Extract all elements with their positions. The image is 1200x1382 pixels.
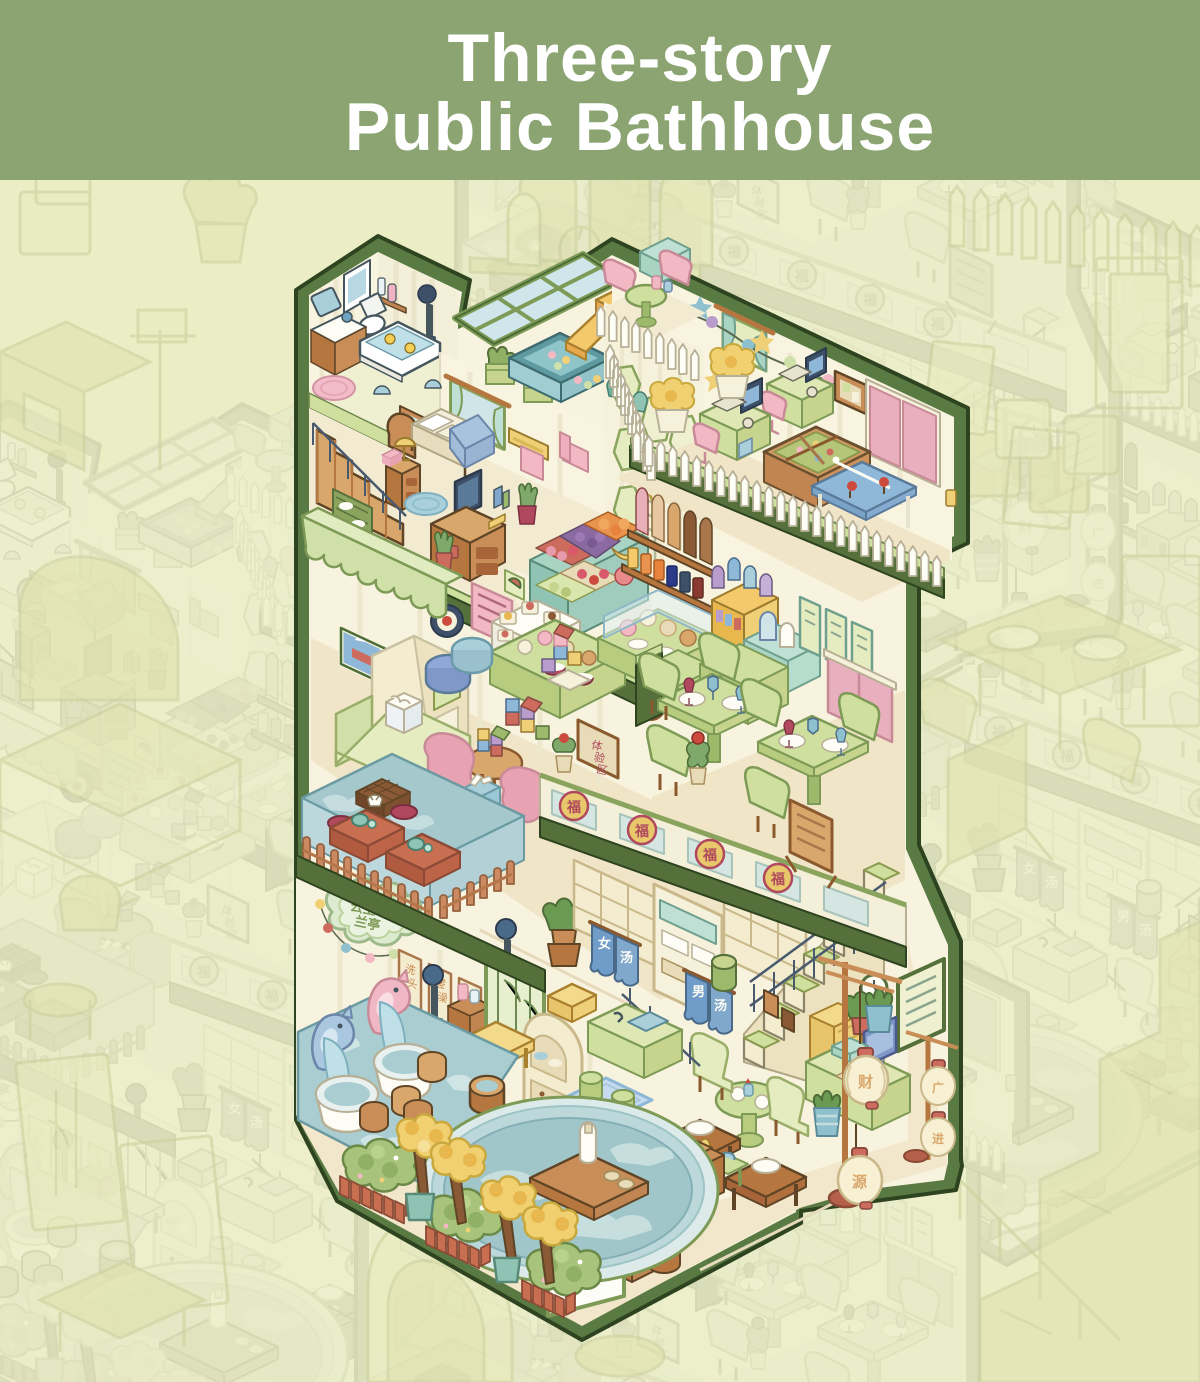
svg-text:福: 福 <box>702 847 717 863</box>
svg-text:女: 女 <box>598 936 611 951</box>
svg-text:广: 广 <box>932 1080 944 1095</box>
svg-text:福: 福 <box>566 799 581 815</box>
svg-text:财: 财 <box>858 1073 873 1091</box>
svg-text:男: 男 <box>692 984 705 999</box>
svg-text:福: 福 <box>770 871 785 887</box>
svg-text:源: 源 <box>852 1173 867 1191</box>
svg-text:汤: 汤 <box>714 998 727 1013</box>
svg-text:汤: 汤 <box>620 950 633 965</box>
svg-text:福: 福 <box>634 823 649 839</box>
svg-text:进: 进 <box>932 1131 944 1146</box>
